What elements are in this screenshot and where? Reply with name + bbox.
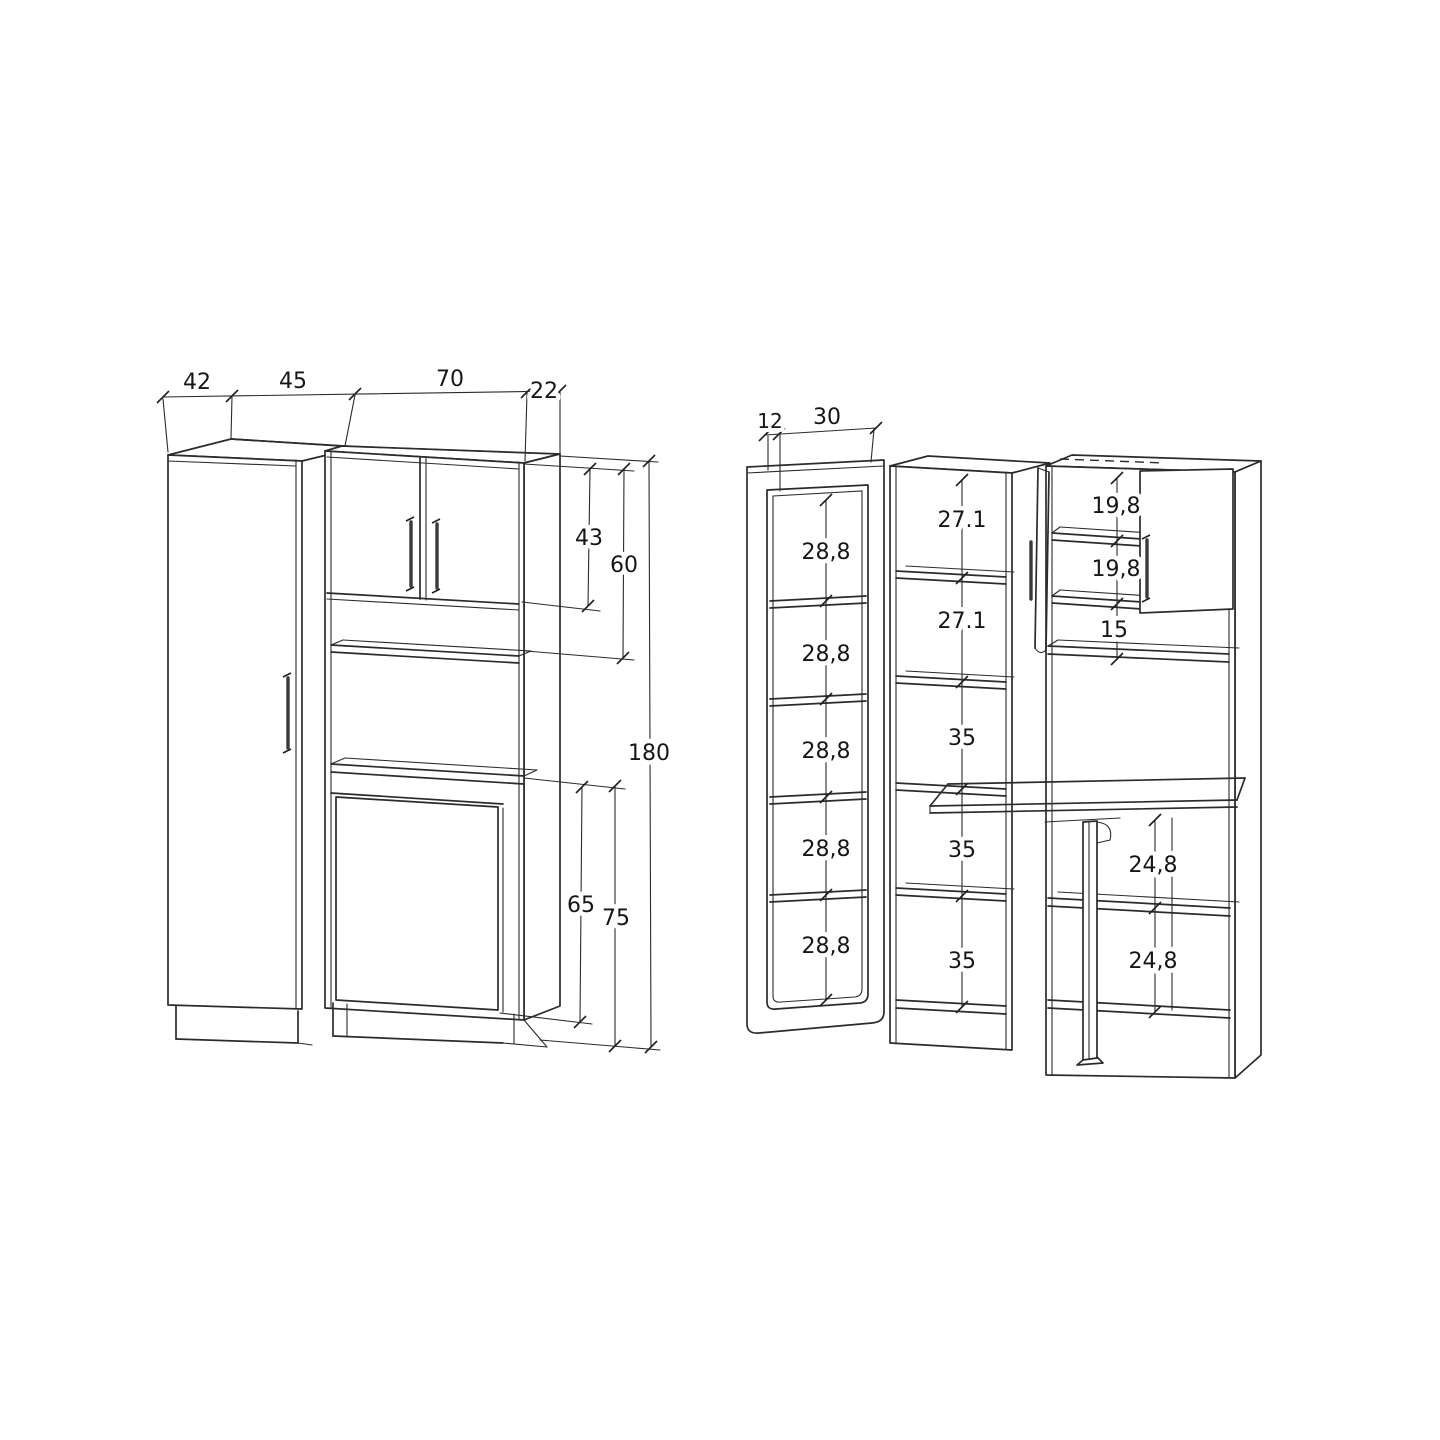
dimension-label: 65 [567, 893, 595, 918]
dimension-label: 19,8 [1092, 557, 1141, 582]
dimension-label: 42 [183, 370, 211, 395]
cabinet-dimension-drawing: 42 45 70 22 [0, 0, 1440, 1440]
wall-unit-door [1140, 469, 1233, 613]
dimension-label: 12 [757, 409, 782, 433]
dimension-label: 22 [530, 379, 558, 404]
dimension-label: 35 [948, 949, 976, 974]
dimension-label: 45 [279, 369, 307, 394]
dimension-label: 19,8 [1092, 494, 1141, 519]
dimension-label: 24,8 [1129, 949, 1178, 974]
dimension-label: 27.1 [938, 609, 987, 634]
right-cabinet-elevation: 28,8 28,8 28,8 28,8 28,8 12 30 [747, 405, 1261, 1078]
dimension-label: 35 [948, 726, 976, 751]
dimension-label: 28,8 [802, 934, 851, 959]
tall-cabinet-front [168, 455, 302, 1009]
dimension-label: 28,8 [802, 642, 851, 667]
dimension-label: 28,8 [802, 837, 851, 862]
tall-cabinet-plinth [176, 1006, 312, 1045]
dimension-label: 24,8 [1129, 853, 1178, 878]
dimension-label: 43 [575, 526, 603, 551]
open-shelf-column: 27.1 27.1 35 35 35 [890, 456, 1050, 1050]
left-cabinet-elevation: 42 45 70 22 [157, 367, 670, 1053]
dimension-label: 70 [436, 367, 464, 392]
dimension-label: 30 [813, 405, 841, 430]
wall-unit-side [1235, 461, 1261, 1078]
dimension-label: 27.1 [938, 508, 987, 533]
hutch-lower-door [331, 793, 503, 1012]
dimension-label: 60 [610, 553, 638, 578]
hutch-side-panel [524, 454, 560, 1020]
dimension-label: 15 [1100, 618, 1128, 643]
dimension-label: 180 [628, 741, 670, 766]
technical-drawing-page: 42 45 70 22 [0, 0, 1440, 1440]
dimension-label: 35 [948, 838, 976, 863]
wall-unit [1031, 455, 1261, 1078]
glass-door-panel: 28,8 28,8 28,8 28,8 28,8 12 30 [747, 405, 884, 1033]
dimension-label: 28,8 [802, 540, 851, 565]
dimension-label: 75 [602, 906, 630, 931]
dimension-label: 28,8 [802, 739, 851, 764]
